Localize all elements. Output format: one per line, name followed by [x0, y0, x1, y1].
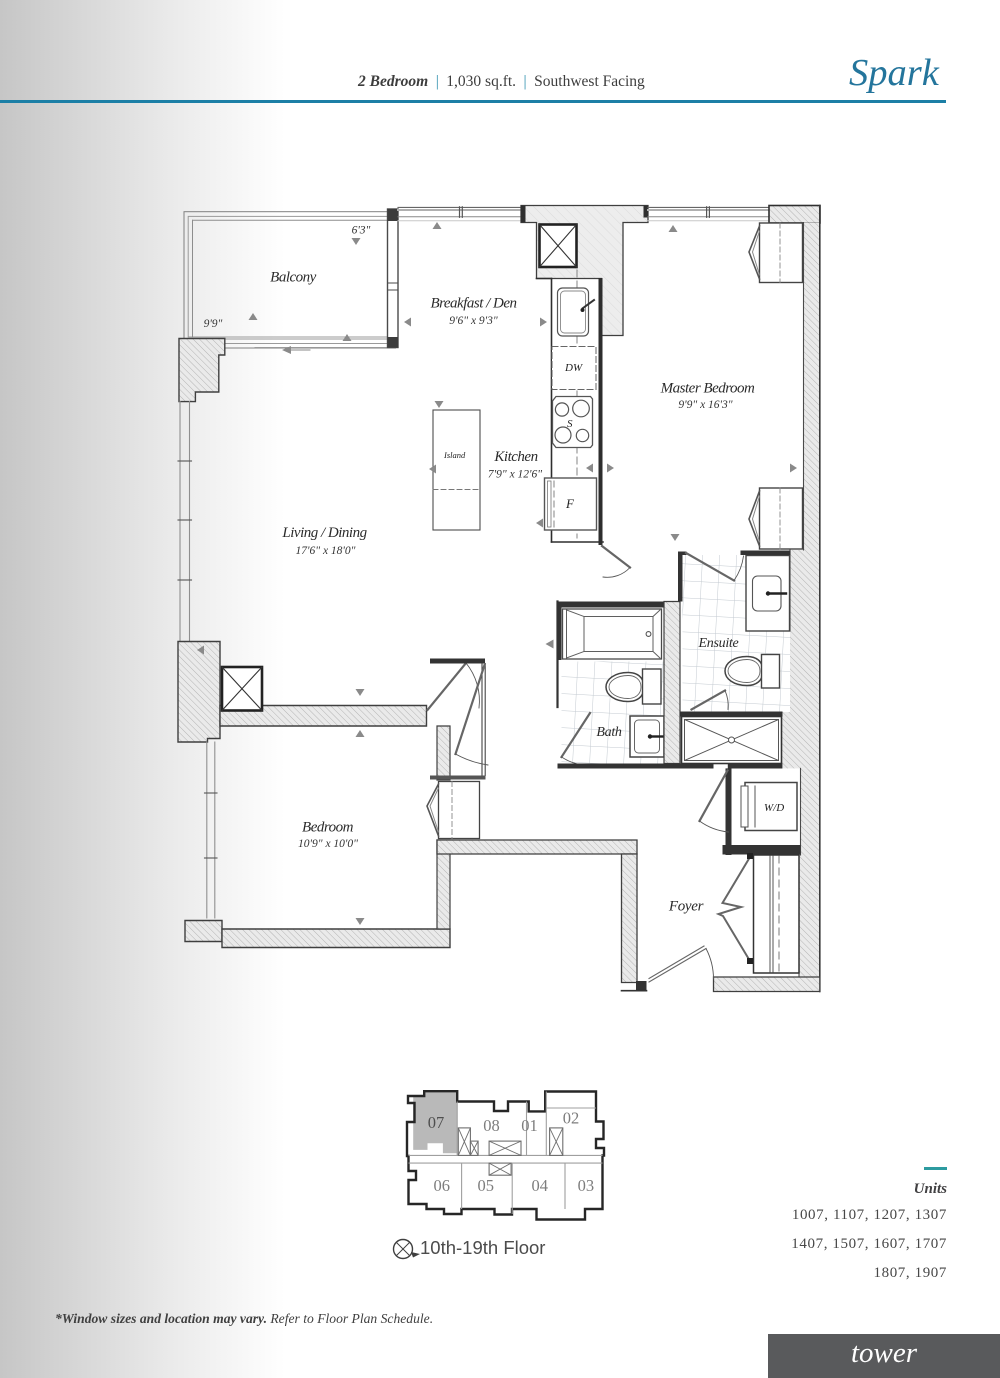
svg-text:9'6" x 9'3": 9'6" x 9'3"	[449, 315, 498, 327]
svg-text:Ensuite: Ensuite	[698, 636, 739, 651]
svg-text:03: 03	[578, 1176, 595, 1195]
svg-text:S: S	[567, 418, 573, 430]
svg-text:Living / Dining: Living / Dining	[281, 525, 367, 541]
svg-text:07: 07	[428, 1113, 445, 1132]
svg-text:Kitchen: Kitchen	[493, 449, 537, 465]
svg-text:Island: Island	[443, 450, 466, 460]
svg-text:06: 06	[434, 1176, 451, 1195]
svg-text:9'9": 9'9"	[204, 318, 223, 330]
svg-text:05: 05	[478, 1176, 495, 1195]
svg-text:F: F	[565, 496, 575, 511]
svg-text:Foyer: Foyer	[668, 899, 704, 915]
svg-text:01: 01	[521, 1116, 538, 1135]
svg-text:02: 02	[563, 1109, 580, 1128]
svg-text:17'6" x 18'0": 17'6" x 18'0"	[296, 545, 356, 557]
svg-text:DW: DW	[564, 362, 583, 374]
svg-text:W/D: W/D	[764, 802, 784, 814]
svg-text:08: 08	[483, 1116, 500, 1135]
svg-text:7'9" x 12'6": 7'9" x 12'6"	[488, 469, 542, 481]
svg-text:04: 04	[531, 1176, 548, 1195]
svg-text:Balcony: Balcony	[270, 270, 316, 286]
svg-text:6'3": 6'3"	[352, 225, 371, 237]
svg-text:Breakfast / Den: Breakfast / Den	[430, 296, 516, 312]
svg-text:10'9" x 10'0": 10'9" x 10'0"	[298, 838, 358, 850]
svg-text:Bath: Bath	[596, 725, 622, 740]
svg-text:Master Bedroom: Master Bedroom	[660, 381, 755, 397]
svg-text:Bedroom: Bedroom	[302, 820, 354, 836]
svg-text:9'9" x 16'3": 9'9" x 16'3"	[678, 399, 732, 411]
